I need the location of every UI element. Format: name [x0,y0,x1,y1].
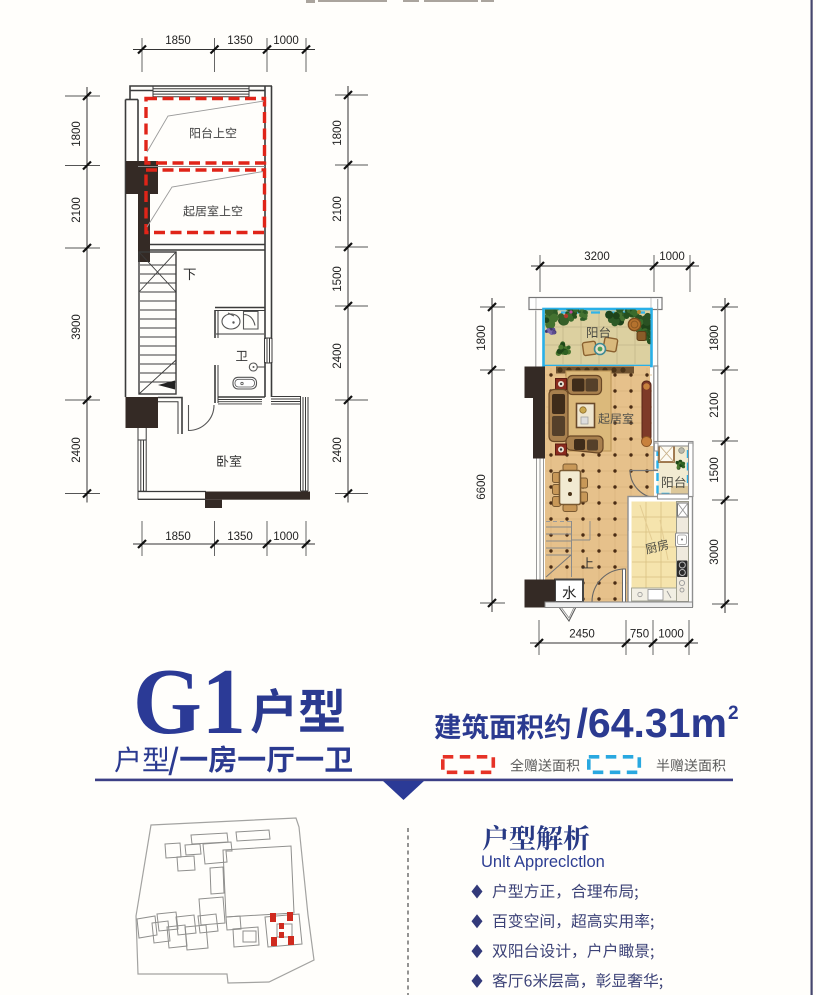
svg-text:3900: 3900 [71,314,83,340]
svg-text:1500: 1500 [332,266,344,292]
svg-text:2100: 2100 [709,392,721,418]
svg-text:2400: 2400 [332,437,344,463]
svg-text:750: 750 [630,629,649,641]
svg-text:2400: 2400 [332,343,344,369]
svg-text:1800: 1800 [332,120,344,146]
svg-text:2400: 2400 [71,437,83,463]
svg-text:1800: 1800 [476,325,488,351]
svg-text:2: 2 [728,703,739,724]
svg-text:1000: 1000 [658,629,684,641]
svg-text:3000: 3000 [709,539,721,565]
svg-text:3200: 3200 [584,251,610,263]
svg-text:1000: 1000 [273,35,299,47]
svg-text:1000: 1000 [659,251,685,263]
svg-text:2100: 2100 [332,196,344,222]
svg-text:1000: 1000 [273,531,299,543]
svg-text:1350: 1350 [227,531,253,543]
svg-text:1850: 1850 [165,531,191,543]
svg-text:1500: 1500 [709,457,721,483]
svg-text:1350: 1350 [227,35,253,47]
svg-text:Unlt Appreclctlon: Unlt Appreclctlon [481,853,605,871]
svg-text:G1: G1 [133,650,246,754]
svg-text:1800: 1800 [709,325,721,351]
svg-text:2450: 2450 [569,629,595,641]
svg-text:/64.31m: /64.31m [577,700,727,746]
svg-text:2100: 2100 [71,197,83,223]
svg-text:1800: 1800 [71,121,83,147]
svg-text:1850: 1850 [165,35,191,47]
svg-text:6600: 6600 [476,474,488,500]
